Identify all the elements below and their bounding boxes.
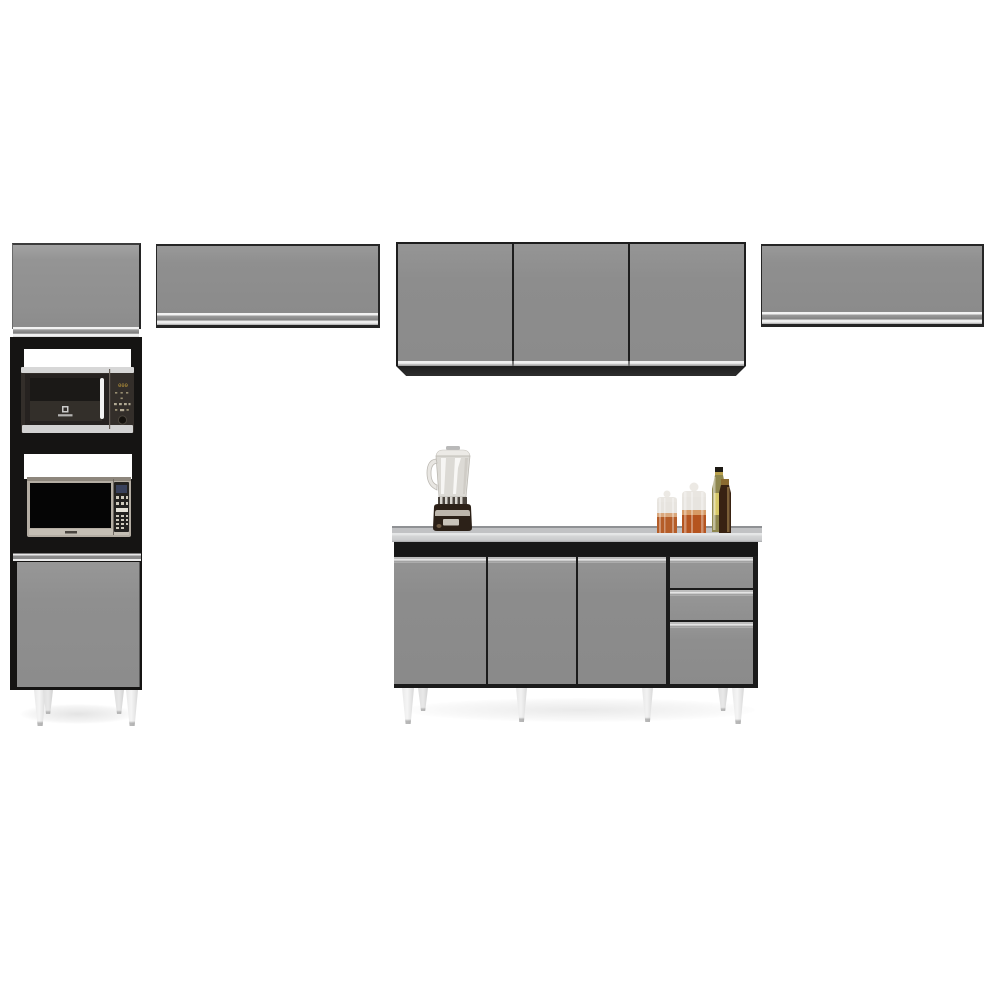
svg-text:000: 000 <box>118 383 128 389</box>
